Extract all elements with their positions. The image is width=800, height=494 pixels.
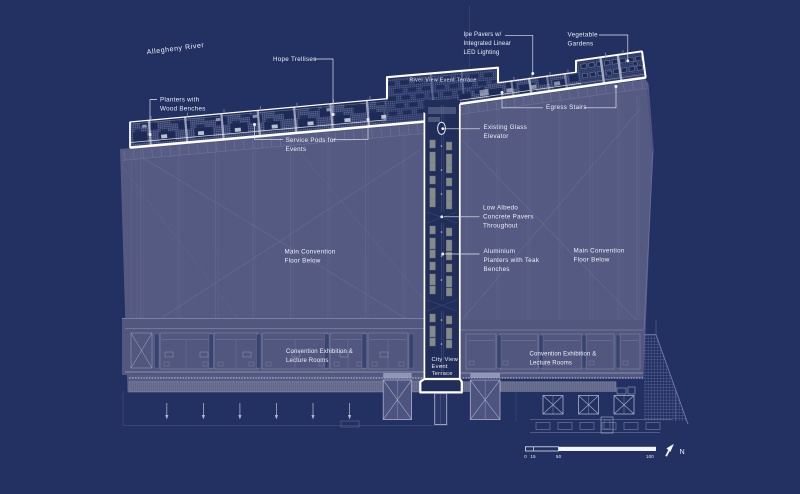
svg-text:15: 15	[531, 454, 537, 459]
svg-text:River View Event Terrace: River View Event Terrace	[410, 78, 477, 84]
svg-text:Hope Trellises: Hope Trellises	[273, 56, 317, 63]
svg-text:Egress Stairs: Egress Stairs	[546, 104, 587, 111]
svg-text:50: 50	[556, 454, 562, 459]
svg-text:0: 0	[524, 454, 527, 459]
svg-text:100: 100	[646, 454, 654, 459]
svg-text:N: N	[680, 447, 686, 456]
